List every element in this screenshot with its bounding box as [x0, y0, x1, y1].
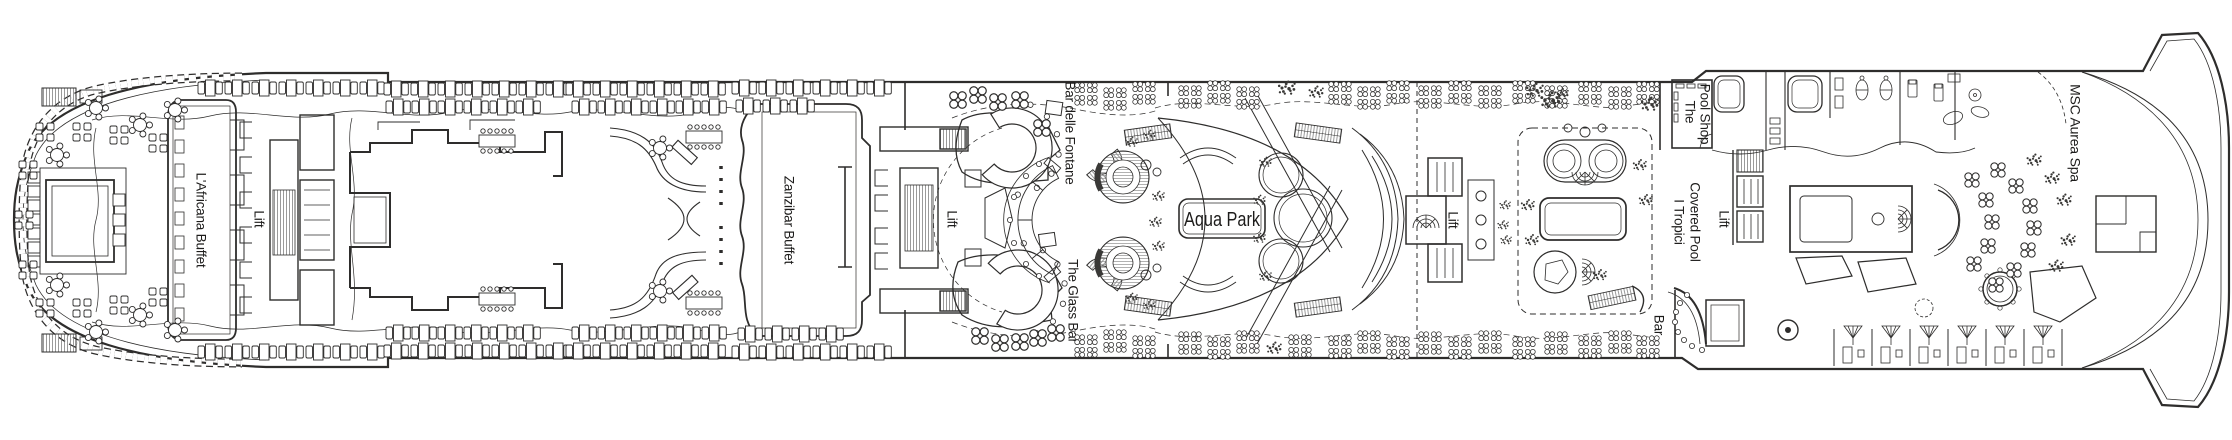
table-group: [1579, 336, 1602, 359]
round-table: [649, 279, 672, 303]
plants: [2057, 194, 2072, 206]
table-group: [1358, 331, 1381, 354]
spa-lounger: [2027, 221, 2041, 235]
dining-table: [386, 325, 410, 341]
lounger: [2033, 347, 2042, 363]
dining-table: [650, 325, 674, 341]
round-table: [46, 273, 69, 297]
plants: [1633, 159, 1647, 170]
spa-lounger: [2023, 199, 2037, 213]
table-group: [1179, 332, 1202, 355]
sunbeds: [1124, 296, 1172, 316]
side-table: [1934, 350, 1940, 357]
covered-pool-main: [1540, 198, 1626, 240]
dining-table: [620, 343, 644, 359]
side-table: [2010, 350, 2016, 357]
dining-table: [702, 325, 726, 341]
panoramic-window-arc: [2082, 72, 2208, 368]
dining-table: [624, 99, 648, 115]
dining-table: [732, 80, 756, 96]
label-lift-3: Lift: [1445, 211, 1460, 229]
label-lift-4: Lift: [1716, 210, 1731, 228]
spa-tub: [1788, 76, 1822, 112]
chair-cluster: [149, 288, 167, 306]
dining-table: [840, 344, 864, 360]
spa-lounger: [1991, 163, 2005, 177]
parasol: [1958, 326, 1976, 345]
lift-3: Lift: [1352, 128, 1494, 310]
bar-stool: [1007, 217, 1012, 222]
table-group: [1387, 81, 1410, 104]
chair-cluster: [110, 126, 128, 144]
table-group: [1419, 332, 1442, 355]
dining-table: [867, 344, 891, 360]
dining-table: [490, 325, 514, 341]
aqua-park-sign: Aqua Park: [1179, 199, 1265, 238]
dining-table: [490, 99, 514, 115]
dining-table: [306, 344, 330, 360]
dining-table: [412, 99, 436, 115]
zanzibar-room: [740, 104, 870, 336]
clover-table: [992, 335, 1009, 352]
chair-cluster: [73, 123, 91, 141]
dining-table: [676, 99, 700, 115]
dining-table: [650, 99, 674, 115]
round-table: [85, 96, 108, 120]
clover-table: [1012, 92, 1029, 109]
table-group: [1545, 332, 1568, 355]
dining-table: [279, 80, 303, 96]
lift-1: Lift: [240, 115, 334, 325]
table-group: [1513, 337, 1536, 360]
clover-table: [1048, 325, 1065, 342]
dining-table: [813, 80, 837, 96]
clover-table: [972, 328, 989, 345]
dining-table: [786, 344, 810, 360]
label-aqua-park: Aqua Park: [1184, 209, 1261, 231]
spa-lounger: [1965, 173, 1979, 187]
plants: [2027, 154, 2042, 166]
bar-stool: [1699, 347, 1704, 352]
dining-table: [438, 99, 462, 115]
dining-table: [813, 344, 837, 360]
dining-table: [198, 344, 222, 360]
chair-cluster: [110, 296, 128, 314]
table-group: [1237, 87, 1260, 110]
round-table: [85, 320, 108, 344]
whirlpool-top: [1097, 151, 1149, 203]
dining-table: [790, 98, 814, 114]
lounger: [1995, 347, 2004, 363]
table-group: [1579, 82, 1602, 105]
dining-table: [333, 344, 357, 360]
bar-stool: [1023, 261, 1028, 266]
table-group: [1104, 88, 1127, 111]
dining-table: [674, 343, 698, 359]
table-group: [1637, 336, 1660, 359]
sunbeds: [1588, 286, 1636, 309]
plants: [1267, 342, 1282, 354]
dining-table: [738, 326, 762, 342]
dining-table: [819, 326, 843, 342]
side-table: [1896, 350, 1902, 357]
bar-stool: [1677, 300, 1682, 305]
table-group: [1449, 337, 1472, 360]
chair-cluster: [73, 299, 91, 317]
dining-table: [279, 344, 303, 360]
dining-table: [676, 325, 700, 341]
spa-lounger: [1989, 278, 2003, 292]
dining-table: [412, 325, 436, 341]
long-table: [479, 129, 515, 153]
table-group: [1358, 87, 1381, 110]
dining-table: [360, 80, 384, 96]
label-zanzibar-buffet: Zanzibar Buffet: [781, 176, 796, 265]
dining-table: [593, 343, 617, 359]
dining-table: [384, 81, 408, 97]
dining-table: [306, 80, 330, 96]
chair-cluster: [36, 299, 54, 317]
table-group: [1419, 86, 1442, 109]
table-group: [1329, 82, 1352, 105]
label-tropici-line1: I Tropici: [1671, 199, 1686, 245]
table-group: [1208, 81, 1231, 104]
dining-table: [252, 80, 276, 96]
pool-bottom: [1259, 239, 1303, 283]
dining-table: [198, 80, 222, 96]
covered-pool: I Tropici Covered Pool: [1518, 124, 1702, 314]
plants: [2061, 234, 2076, 246]
dining-table: [572, 99, 596, 115]
table-group: [1329, 336, 1352, 359]
table-group: [1133, 82, 1156, 105]
plants: [2045, 172, 2060, 184]
dining-table: [438, 343, 462, 359]
dining-table: [674, 81, 698, 97]
dining-table: [519, 343, 543, 359]
dining-table: [786, 80, 810, 96]
dining-table: [438, 81, 462, 97]
dining-table: [516, 99, 540, 115]
plants: [1309, 86, 1324, 98]
label-the-glass-bar: The Glass Bar: [1065, 259, 1080, 343]
deck-plan: L'Africana Buffet Lift Zanzibar Buffet L: [0, 0, 2232, 440]
dining-table: [492, 343, 516, 359]
dining-table: [516, 325, 540, 341]
round-table: [649, 136, 672, 160]
dining-table: [593, 81, 617, 97]
dining-table: [465, 81, 489, 97]
plants: [2049, 260, 2064, 272]
bar-stool: [1036, 161, 1041, 166]
dining-table: [519, 81, 543, 97]
dining-table: [759, 80, 783, 96]
dining-table: [702, 99, 726, 115]
lift-4: Lift: [1716, 150, 1763, 245]
plants: [1521, 199, 1535, 210]
main-pool: [1274, 189, 1332, 247]
dining-table: [647, 81, 671, 97]
spa-lounger: [2007, 263, 2021, 277]
table-group: [1133, 336, 1156, 359]
spa-lounger: [1967, 257, 1981, 271]
spa-tub: [1714, 76, 1744, 112]
bar-stool: [1036, 273, 1041, 278]
plants: [1525, 234, 1539, 245]
table-group: [1208, 337, 1231, 360]
clover-table: [1030, 330, 1047, 347]
plants: [1499, 200, 1510, 209]
table-group: [1513, 81, 1536, 104]
label-lift-2: Lift: [944, 210, 959, 228]
spa-lounger: [1985, 215, 1999, 229]
aurea-spa: MSC Aurea Spa: [1712, 72, 2156, 340]
parasol: [1882, 326, 1900, 345]
bar-stool: [1023, 173, 1028, 178]
dining-table: [464, 99, 488, 115]
bar-stool: [1681, 337, 1686, 342]
round-table: [129, 303, 152, 327]
dining-table: [759, 344, 783, 360]
table-group: [1609, 87, 1632, 110]
lounger: [1843, 347, 1852, 363]
dining-table: [252, 344, 276, 360]
dining-table: [620, 81, 644, 97]
dining-table: [598, 99, 622, 115]
dining-table: [438, 325, 462, 341]
side-table: [2048, 350, 2054, 357]
stairs: [273, 190, 295, 255]
dining-table: [566, 343, 590, 359]
bow-bar: Bar: [1651, 288, 1744, 346]
label-africana-buffet: L'Africana Buffet: [193, 173, 208, 268]
long-table: [686, 125, 722, 149]
lift-2: Lift: [838, 127, 1012, 313]
label-pool-shop-line2: Pool Shop: [1697, 84, 1712, 145]
side-table: [1858, 350, 1864, 357]
dining-table: [598, 325, 622, 341]
clover-table: [950, 92, 967, 109]
bar-stool: [1684, 292, 1689, 297]
spa-lounger: [2009, 179, 2023, 193]
long-table: [479, 287, 515, 311]
round-table: [129, 113, 152, 137]
dining-table: [225, 80, 249, 96]
parasol: [1844, 326, 1862, 345]
stairs: [42, 88, 76, 106]
plants: [1152, 241, 1165, 251]
stern-dance-floor: [46, 180, 114, 262]
clover-table: [1012, 334, 1029, 351]
lounger: [1881, 347, 1890, 363]
plants: [1639, 194, 1653, 205]
table-group: [1075, 335, 1098, 358]
dining-table: [867, 80, 891, 96]
clover-table: [970, 87, 987, 104]
deck-plan-canvas: L'Africana Buffet Lift Zanzibar Buffet L: [0, 0, 2232, 440]
side-table: [1972, 350, 1978, 357]
dining-table: [411, 81, 435, 97]
table-group: [1479, 331, 1502, 354]
table-group: [1609, 331, 1632, 354]
dining-table: [566, 81, 590, 97]
bar-stool: [1011, 194, 1016, 199]
table-group: [1449, 81, 1472, 104]
pool-shop: The Pool Shop: [1672, 80, 1712, 148]
spa-lounger: [1981, 239, 1995, 253]
dining-table: [411, 343, 435, 359]
dining-table: [492, 81, 516, 97]
dining-table: [765, 326, 789, 342]
africana-buffet: L'Africana Buffet: [168, 100, 244, 340]
sunbeds: [1294, 297, 1342, 317]
table-group: [1179, 86, 1202, 109]
bar-stool: [1675, 329, 1680, 334]
table-group: [1104, 330, 1127, 353]
stairs: [42, 334, 76, 352]
dining-table: [736, 98, 760, 114]
round-table: [164, 318, 187, 342]
sunbeds: [1294, 123, 1342, 143]
stairs: [905, 185, 933, 251]
bar-stool: [1672, 319, 1677, 324]
dining-table: [792, 326, 816, 342]
spa-lounger: [2021, 243, 2035, 257]
dining-table: [464, 325, 488, 341]
dining-table: [333, 80, 357, 96]
dining-table: [840, 80, 864, 96]
thermal-pool: [1800, 196, 1852, 242]
parasol: [1920, 326, 1938, 345]
plants: [1259, 271, 1272, 281]
spa-lounger: [1979, 193, 1993, 207]
label-bar: Bar: [1651, 315, 1666, 336]
furniture-layer: [15, 80, 2076, 366]
dining-table: [572, 325, 596, 341]
label-pool-shop-line1: The: [1682, 101, 1697, 124]
lounger: [1919, 347, 1928, 363]
dining-table: [465, 343, 489, 359]
bar-stool: [1011, 240, 1016, 245]
plants: [1149, 217, 1162, 227]
round-pool: [1534, 251, 1576, 293]
plants: [1500, 235, 1511, 244]
dining-table: [701, 81, 725, 97]
dining-table: [624, 325, 648, 341]
label-lift-1: Lift: [251, 210, 266, 228]
parasol: [1996, 326, 2014, 345]
dining-table: [225, 344, 249, 360]
dining-table: [701, 343, 725, 359]
label-tropici-line2: Covered Pool: [1687, 182, 1702, 262]
clover-table: [990, 94, 1007, 111]
table-group: [1387, 337, 1410, 360]
dining-table: [360, 344, 384, 360]
table-group: [1479, 86, 1502, 109]
plants: [1152, 191, 1165, 201]
label-msc-aurea-spa: MSC Aurea Spa: [2067, 84, 2083, 182]
round-table: [46, 143, 69, 167]
parasol: [2034, 326, 2052, 345]
atrium-opening: [350, 120, 562, 310]
dining-table: [732, 344, 756, 360]
sunbeds: [1124, 124, 1172, 144]
long-table: [686, 291, 722, 315]
bar-stool: [1689, 343, 1694, 348]
dining-table: [386, 99, 410, 115]
whirlpool-bottom: [1097, 237, 1149, 289]
zanzibar-buffet: Zanzibar Buffet: [740, 104, 870, 336]
plants: [1497, 220, 1508, 229]
chair-cluster: [149, 134, 167, 152]
dining-table: [647, 343, 671, 359]
dining-table: [384, 343, 408, 359]
bar-stool: [1673, 309, 1678, 314]
lounger: [1957, 347, 1966, 363]
dining-table: [763, 98, 787, 114]
